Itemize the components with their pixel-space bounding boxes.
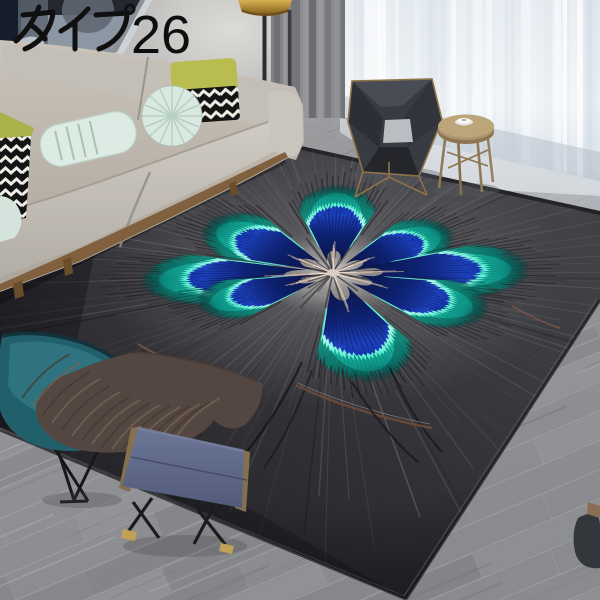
- svg-text:26: 26: [131, 5, 191, 65]
